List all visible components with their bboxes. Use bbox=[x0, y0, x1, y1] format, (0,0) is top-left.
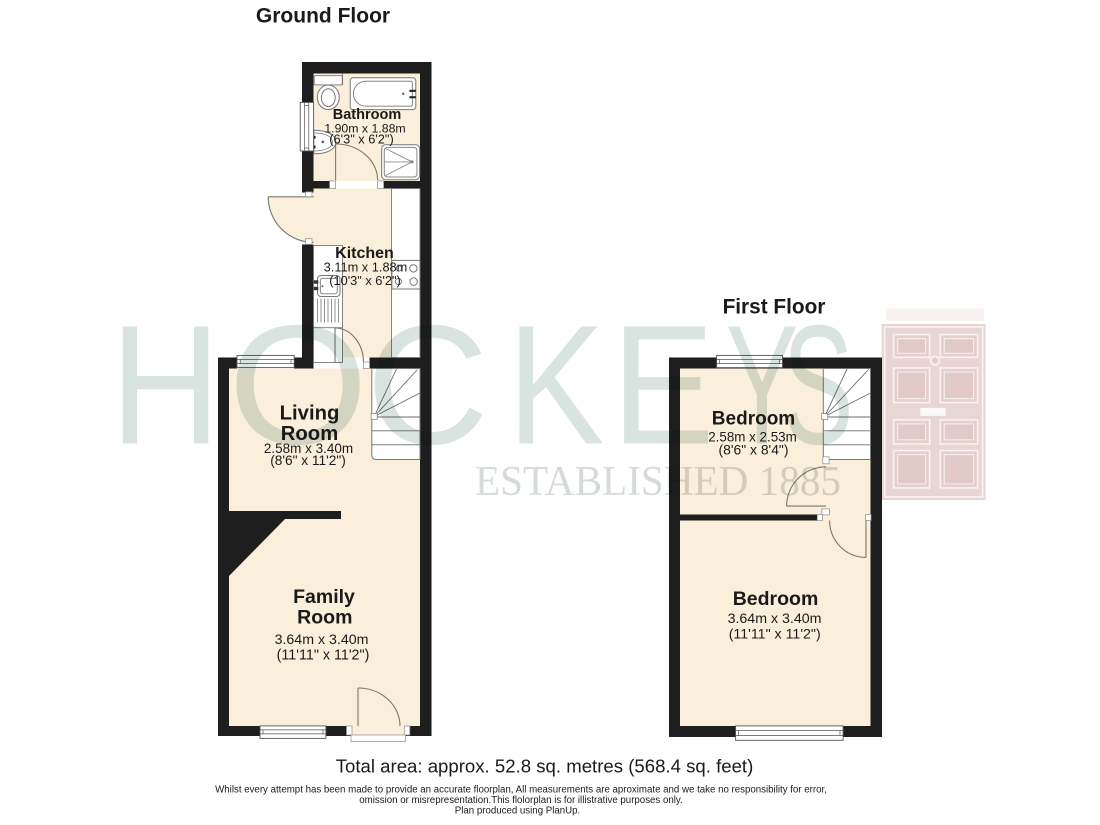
svg-text:omission or misrepresentation.: omission or misrepresentation.This flolo… bbox=[359, 795, 682, 806]
svg-text:(11'11" x 11'2"): (11'11" x 11'2") bbox=[729, 627, 821, 643]
svg-text:Family: Family bbox=[293, 586, 355, 608]
svg-text:(10'3" x 6'2"): (10'3" x 6'2") bbox=[329, 273, 401, 288]
svg-text:C: C bbox=[366, 291, 489, 481]
svg-text:S: S bbox=[782, 290, 853, 480]
svg-text:(11'11" x 11'2"): (11'11" x 11'2") bbox=[277, 647, 370, 663]
svg-text:K: K bbox=[508, 290, 605, 480]
svg-text:Ground Floor: Ground Floor bbox=[256, 5, 390, 28]
svg-text:Total area: approx. 52.8 sq. m: Total area: approx. 52.8 sq. metres (568… bbox=[336, 756, 754, 777]
svg-text:3.64m x 3.40m: 3.64m x 3.40m bbox=[728, 611, 822, 627]
svg-text:3.64m x 3.40m: 3.64m x 3.40m bbox=[275, 632, 369, 648]
svg-text:3.11m x 1.88m: 3.11m x 1.88m bbox=[324, 259, 408, 274]
svg-text:Plan produced using PlanUp.: Plan produced using PlanUp. bbox=[455, 805, 580, 816]
svg-text:Whilst every attempt has been: Whilst every attempt has been made to pr… bbox=[215, 784, 827, 795]
svg-text:E: E bbox=[611, 291, 714, 480]
svg-text:Bedroom: Bedroom bbox=[733, 588, 819, 610]
svg-text:(6'3" x 6'2"): (6'3" x 6'2") bbox=[329, 132, 393, 147]
svg-text:Room: Room bbox=[297, 606, 352, 628]
svg-text:ESTABLISHED 1885: ESTABLISHED 1885 bbox=[475, 458, 841, 505]
svg-text:H: H bbox=[110, 291, 220, 480]
svg-text:O: O bbox=[228, 290, 368, 480]
